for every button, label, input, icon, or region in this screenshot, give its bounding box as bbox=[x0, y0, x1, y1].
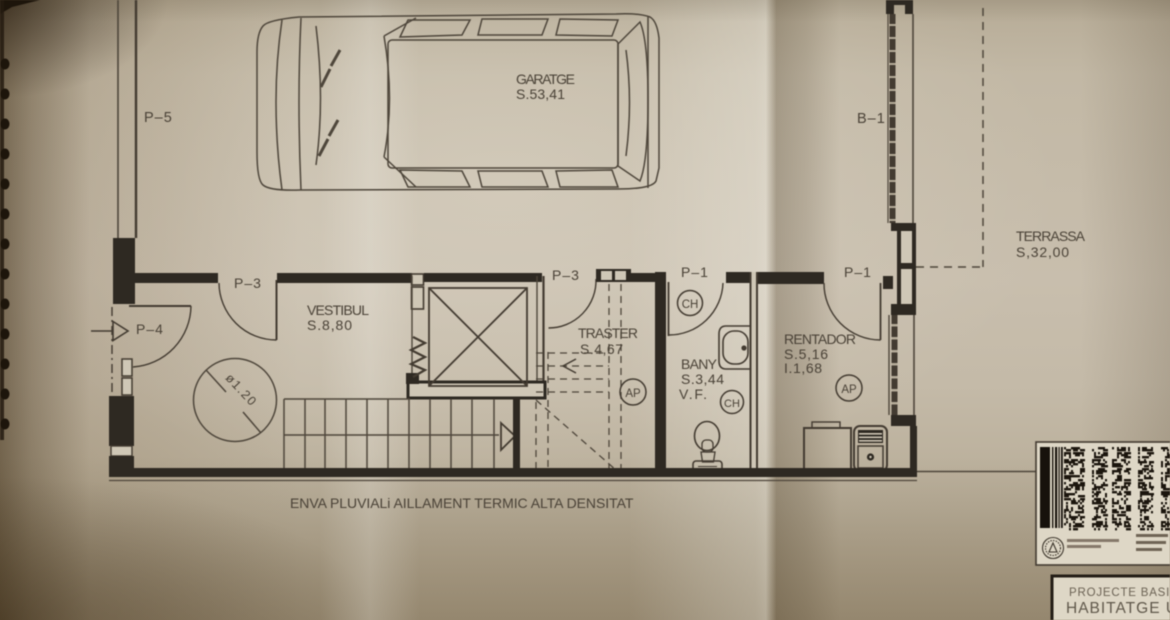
svg-text:BANY: BANY bbox=[681, 356, 718, 372]
svg-text:HABITATGE U: HABITATGE U bbox=[1066, 600, 1170, 617]
svg-text:PROJECTE BASIC I: PROJECTE BASIC I bbox=[1069, 587, 1170, 599]
svg-text:B–1: B–1 bbox=[857, 111, 886, 127]
svg-text:P–1: P–1 bbox=[844, 264, 872, 280]
svg-text:I.1,68: I.1,68 bbox=[784, 360, 822, 376]
svg-text:S.3,44: S.3,44 bbox=[681, 371, 724, 387]
svg-text:P–4: P–4 bbox=[136, 321, 164, 337]
svg-text:AP: AP bbox=[625, 388, 641, 400]
svg-text:ENVA PLUVIALi AILLAMENT TERMIC: ENVA PLUVIALi AILLAMENT TERMIC ALTA DENS… bbox=[290, 495, 634, 511]
svg-text:S.4,67: S.4,67 bbox=[580, 341, 623, 357]
svg-text:TERRASSA: TERRASSA bbox=[1016, 228, 1086, 244]
svg-text:P–1: P–1 bbox=[681, 264, 709, 280]
svg-text:AP: AP bbox=[841, 384, 857, 396]
svg-text:P–5: P–5 bbox=[144, 110, 173, 126]
svg-text:S.8,80: S.8,80 bbox=[307, 317, 352, 333]
svg-text:S.53,41: S.53,41 bbox=[516, 86, 565, 102]
svg-text:S,32,00: S,32,00 bbox=[1016, 244, 1069, 260]
svg-text:TRASTER: TRASTER bbox=[578, 325, 638, 341]
svg-text:P–3: P–3 bbox=[552, 267, 580, 283]
svg-text:CH: CH bbox=[682, 299, 699, 311]
svg-text:CH: CH bbox=[724, 398, 740, 410]
svg-text:ø1.20: ø1.20 bbox=[223, 371, 260, 409]
svg-text:VESTIBUL: VESTIBUL bbox=[307, 302, 369, 318]
svg-text:GARATGE: GARATGE bbox=[516, 71, 575, 87]
svg-text:V.F.: V.F. bbox=[679, 386, 707, 402]
svg-text:P–3: P–3 bbox=[234, 275, 262, 291]
svg-text:RENTADOR: RENTADOR bbox=[784, 331, 856, 347]
